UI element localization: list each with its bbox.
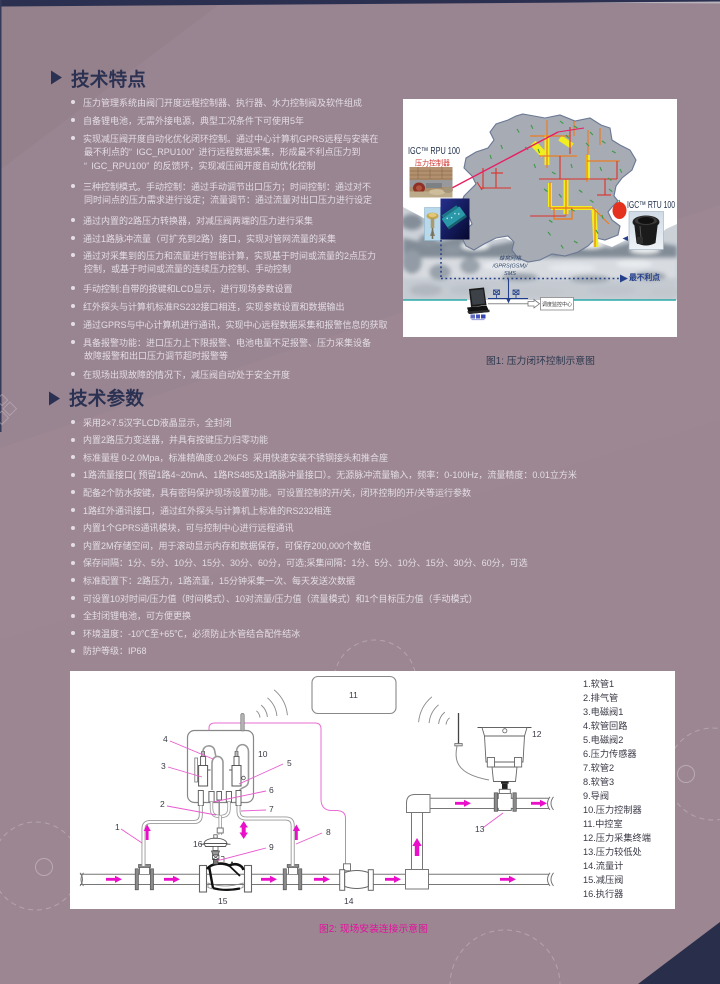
svg-text:13.压力较低处: 13.压力较低处 [583,846,642,857]
svg-text:IGC™ RTU 100: IGC™ RTU 100 [627,200,675,211]
svg-text:10: 10 [258,749,268,759]
svg-text:14: 14 [344,896,354,906]
svg-text:12.压力采集终端: 12.压力采集终端 [583,832,651,843]
svg-text:/GPRS(GSM)/: /GPRS(GSM)/ [492,264,528,270]
svg-text:11.中控室: 11.中控室 [583,818,623,829]
svg-text:11: 11 [349,690,358,700]
svg-text:5: 5 [287,758,292,768]
svg-text:16: 16 [193,839,203,849]
svg-text:1.软管1: 1.软管1 [583,678,614,689]
svg-text:15.减压阀: 15.减压阀 [583,874,623,885]
svg-text:压力控制器: 压力控制器 [415,159,450,168]
svg-text:16.执行器: 16.执行器 [583,888,623,899]
svg-text:5.电磁阀2: 5.电磁阀2 [583,734,623,745]
svg-text:9.导阀: 9.导阀 [583,791,609,801]
svg-text:10.压力控制器: 10.压力控制器 [583,804,642,815]
svg-text:14.流量计: 14.流量计 [583,860,623,871]
svg-text:调度监控中心: 调度监控中心 [542,301,572,308]
svg-text:6.压力传感器: 6.压力传感器 [583,748,637,759]
svg-text:9: 9 [269,842,274,852]
svg-text:6: 6 [269,785,274,795]
svg-text:2: 2 [160,799,165,809]
svg-text:13: 13 [475,824,485,834]
svg-text:1: 1 [115,822,120,832]
svg-text:SMS: SMS [504,271,516,277]
svg-text:IGC™ RPU 100: IGC™ RPU 100 [408,146,460,157]
svg-text:8: 8 [326,827,331,837]
svg-text:15: 15 [218,896,228,906]
svg-text:4: 4 [163,734,168,744]
svg-text:3: 3 [161,761,166,771]
svg-text:12: 12 [532,729,542,739]
svg-text:最不利点: 最不利点 [629,272,660,282]
svg-text:8.软管3: 8.软管3 [583,776,614,787]
svg-text:3.电磁阀1: 3.电磁阀1 [583,706,623,717]
svg-text:7.软管2: 7.软管2 [583,762,614,773]
svg-text:4.软管回路: 4.软管回路 [583,720,627,731]
svg-text:2.排气管: 2.排气管 [583,692,618,703]
svg-text:7: 7 [269,804,274,814]
svg-text:蜂窝网络: 蜂窝网络 [499,255,523,262]
